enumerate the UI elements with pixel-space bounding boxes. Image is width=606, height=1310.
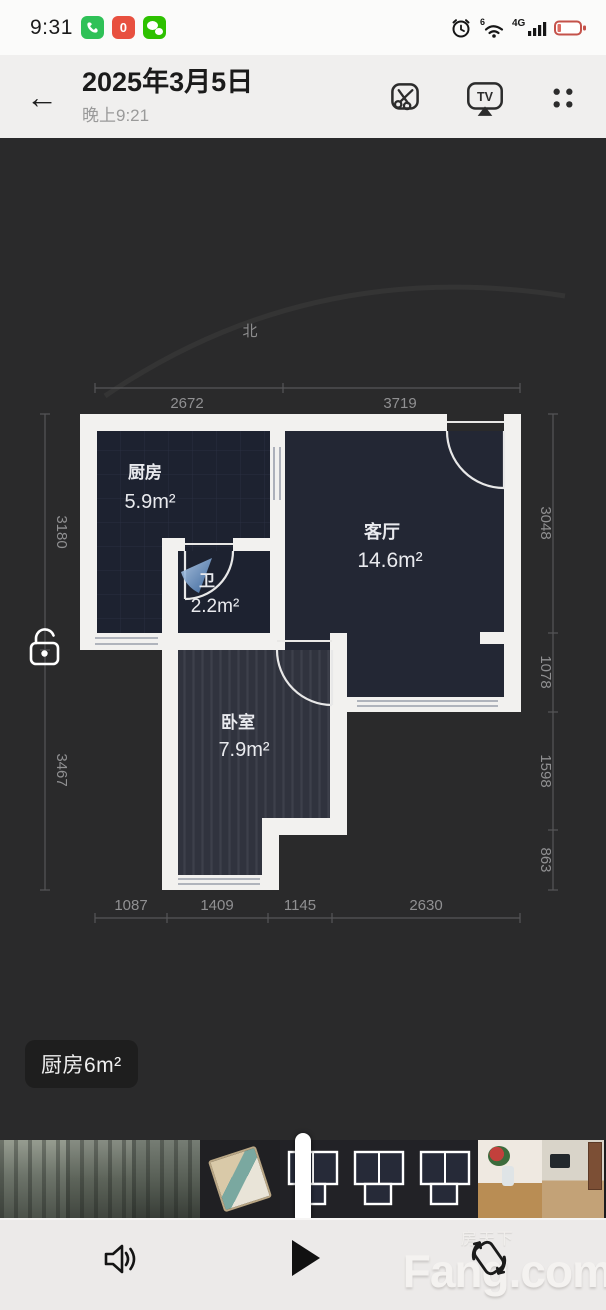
bathroom-floor <box>178 551 270 633</box>
bedroom-label: 卧室 <box>221 712 255 732</box>
back-button[interactable]: ← <box>26 81 58 113</box>
floor-plan: 北 <box>0 138 606 1140</box>
wifi6-icon: 6 <box>479 16 506 40</box>
thumbnail-floorplan-1[interactable] <box>280 1140 346 1218</box>
phone-icon <box>85 20 100 35</box>
crop-edit-button[interactable] <box>384 76 426 118</box>
tv-icon-label: TV <box>477 90 494 104</box>
status-bar: 9:31 0 6 4G <box>0 0 606 55</box>
battery-low-icon <box>554 19 588 37</box>
badge-app-icon: 0 <box>112 16 135 39</box>
wifi-gen-label: 6 <box>480 17 485 27</box>
dim-left-1: 3180 <box>53 515 70 548</box>
gallery-header: ← 2025年3月5日 晚上9:21 TV <box>0 55 606 138</box>
video-caption: 厨房6m² <box>25 1040 138 1088</box>
player-controls: 房天下 Fang.com <box>0 1218 606 1310</box>
video-timeline-strip[interactable] <box>0 1140 606 1218</box>
wechat-icon <box>143 16 166 39</box>
cast-to-tv-button[interactable]: TV <box>462 76 508 118</box>
thumbnail-3d-plan[interactable] <box>200 1140 280 1218</box>
page-subtitle: 晚上9:21 <box>82 101 384 126</box>
bath-area: 2.2m² <box>191 596 240 617</box>
play-button[interactable] <box>284 1234 326 1282</box>
volume-button[interactable] <box>96 1236 142 1282</box>
status-time: 9:31 <box>30 16 73 40</box>
dim-bottom-1: 1087 <box>114 897 147 914</box>
dim-right-1: 3048 <box>537 506 554 539</box>
video-frame[interactable]: 北 <box>0 138 606 1140</box>
network-type-label: 4G <box>512 18 526 29</box>
thumbnail-building-2[interactable] <box>66 1140 132 1218</box>
phone-notification-icon <box>81 16 104 39</box>
more-options-button[interactable] <box>544 78 582 116</box>
cellular-signal-icon: 4G <box>512 16 548 40</box>
dim-left-2: 3467 <box>53 753 70 786</box>
rotate-screen-button[interactable] <box>462 1230 516 1286</box>
dim-bottom-2: 1409 <box>200 897 233 914</box>
bedroom-floor <box>178 650 330 818</box>
bath-label: 卫 <box>199 573 215 590</box>
alarm-icon <box>449 16 473 40</box>
dim-bottom-4: 2630 <box>409 897 442 914</box>
dim-right-3: 1598 <box>537 754 554 787</box>
bedroom-area: 7.9m² <box>218 739 269 761</box>
kitchen-label: 厨房 <box>128 462 162 482</box>
living-label: 客厅 <box>364 521 400 542</box>
dim-top-1: 2672 <box>170 395 203 412</box>
bedroom-floor-lower <box>178 818 262 875</box>
phone-screen: 9:31 0 6 4G <box>0 0 606 1308</box>
thumbnail-interior-1[interactable] <box>478 1140 542 1218</box>
dim-right-2: 1078 <box>537 655 554 688</box>
thumbnail-floorplan-2[interactable] <box>346 1140 412 1218</box>
mini-floorplan-icon <box>419 1148 471 1210</box>
mini-floorplan-icon <box>353 1148 405 1210</box>
thumbnail-building-1[interactable] <box>0 1140 66 1218</box>
dim-bottom-3: 1145 <box>284 897 316 914</box>
thumbnail-building-3[interactable] <box>132 1140 200 1218</box>
dim-top-2: 3719 <box>383 395 416 412</box>
kitchen-area: 5.9m² <box>124 491 175 513</box>
living-area: 14.6m² <box>357 549 422 572</box>
thumbnail-floorplan-3[interactable] <box>412 1140 478 1218</box>
timeline-playhead[interactable] <box>295 1133 311 1225</box>
compass-arc <box>105 287 565 396</box>
page-title: 2025年3月5日 <box>82 67 384 98</box>
dim-right-4: 863 <box>537 847 554 872</box>
compass-north-label: 北 <box>242 323 257 340</box>
thumbnail-interior-2[interactable] <box>542 1140 604 1218</box>
